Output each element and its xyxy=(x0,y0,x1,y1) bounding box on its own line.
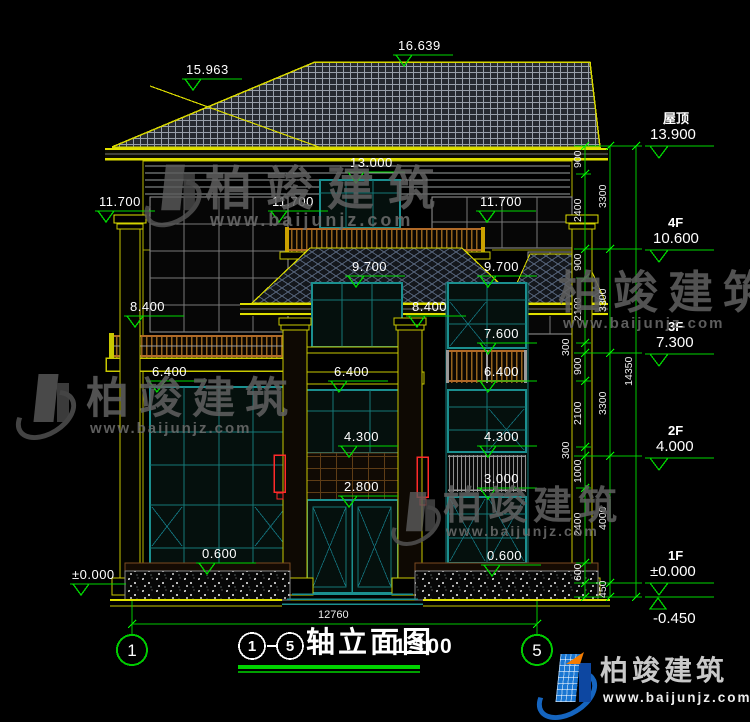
elevation-drawing-sheet: 16.639 15.963 13.000 11.700 11.700 11.70… xyxy=(0,0,750,722)
watermark-logo-left xyxy=(16,374,78,440)
company-logo xyxy=(538,652,600,718)
watermark-url-top: www.baijunjz.com xyxy=(210,211,413,229)
spot-elev-4300-right: 4.300 xyxy=(484,430,519,443)
level-elev-1f: ±0.000 xyxy=(650,564,696,579)
dim-inner-2400a: 2400 xyxy=(573,188,584,232)
level-elev-ground: -0.450 xyxy=(653,611,696,626)
spot-elev-11700-right: 11.700 xyxy=(480,195,522,208)
watermark-brand-top: 柏竣建筑 xyxy=(205,165,449,212)
dim-inner-900c: 900 xyxy=(573,344,584,388)
level-name-4f: 4F xyxy=(668,216,683,229)
spot-elev-7600: 7.600 xyxy=(484,327,519,340)
spot-elev-2800: 2.800 xyxy=(344,480,379,493)
spot-elev-zero-left: ±0.000 xyxy=(72,568,115,581)
level-elev-3f: 7.300 xyxy=(656,335,694,350)
spot-elev-8400-left: 8.400 xyxy=(130,300,165,313)
level-name-2f: 2F xyxy=(668,424,683,437)
dim-inner-300b: 300 xyxy=(561,428,572,472)
ground-line xyxy=(110,600,610,606)
watermark-logo-top xyxy=(145,165,204,228)
dim-floor-450: 450 xyxy=(598,567,609,611)
title-axis-end: 5 xyxy=(277,639,303,654)
dim-total-14350: 14350 xyxy=(624,349,635,393)
spot-elev-6400-center: 6.400 xyxy=(334,365,369,378)
level-name-1f: 1F xyxy=(668,549,683,562)
watermark-logo-center xyxy=(392,492,443,546)
watermark-brand-right: 柏竣建筑 xyxy=(558,270,750,315)
facade-linework xyxy=(0,0,750,722)
entry-door xyxy=(300,453,405,593)
watermark-url-left: www.baijunjz.com xyxy=(90,421,251,436)
title-axis-start: 1 xyxy=(239,639,265,654)
watermark-url-right: www.baijunjz.com xyxy=(563,316,724,331)
dim-floor-3300c: 3300 xyxy=(598,381,609,425)
spot-elev-0600-left: 0.600 xyxy=(202,547,237,560)
spot-elev-8400-right: 8.400 xyxy=(412,300,447,313)
spot-elev-6400-right: 6.400 xyxy=(484,365,519,378)
watermark-brand-left: 柏竣建筑 xyxy=(86,378,298,421)
spot-elev-0600-right: 0.600 xyxy=(487,549,522,562)
level-name-roof: 屋顶 xyxy=(663,112,689,125)
dim-inner-600: 600 xyxy=(573,550,584,594)
spot-elev-hip: 15.963 xyxy=(186,63,229,76)
watermark-brand-center: 柏竣建筑 xyxy=(443,487,623,526)
company-brand: 柏竣建筑 xyxy=(600,657,728,685)
spot-elev-11700-left: 11.700 xyxy=(99,195,141,208)
drawing-scale: 1:100 xyxy=(394,636,453,657)
spot-elev-4300-center: 4.300 xyxy=(344,430,379,443)
company-url: www.baijunjz.com xyxy=(603,691,750,705)
dim-bottom-12760: 12760 xyxy=(318,610,349,621)
level-elev-2f: 4.000 xyxy=(656,439,694,454)
level-elev-4f: 10.600 xyxy=(653,231,699,246)
dim-inner-2100b: 2100 xyxy=(573,391,584,435)
watermark-url-center: www.baijunjz.com xyxy=(446,524,599,538)
dim-inner-900a: 900 xyxy=(573,137,584,181)
level-elev-roof: 13.900 xyxy=(650,127,696,142)
dim-floor-3300a: 3300 xyxy=(598,174,609,218)
spot-elev-ridge: 16.639 xyxy=(398,39,441,52)
spot-elev-9700-center: 9.700 xyxy=(352,260,387,273)
spot-elev-3000: 3.000 xyxy=(484,472,519,485)
axis-bubble-1: 1 xyxy=(117,642,147,659)
spot-elev-9700-right: 9.700 xyxy=(484,260,519,273)
